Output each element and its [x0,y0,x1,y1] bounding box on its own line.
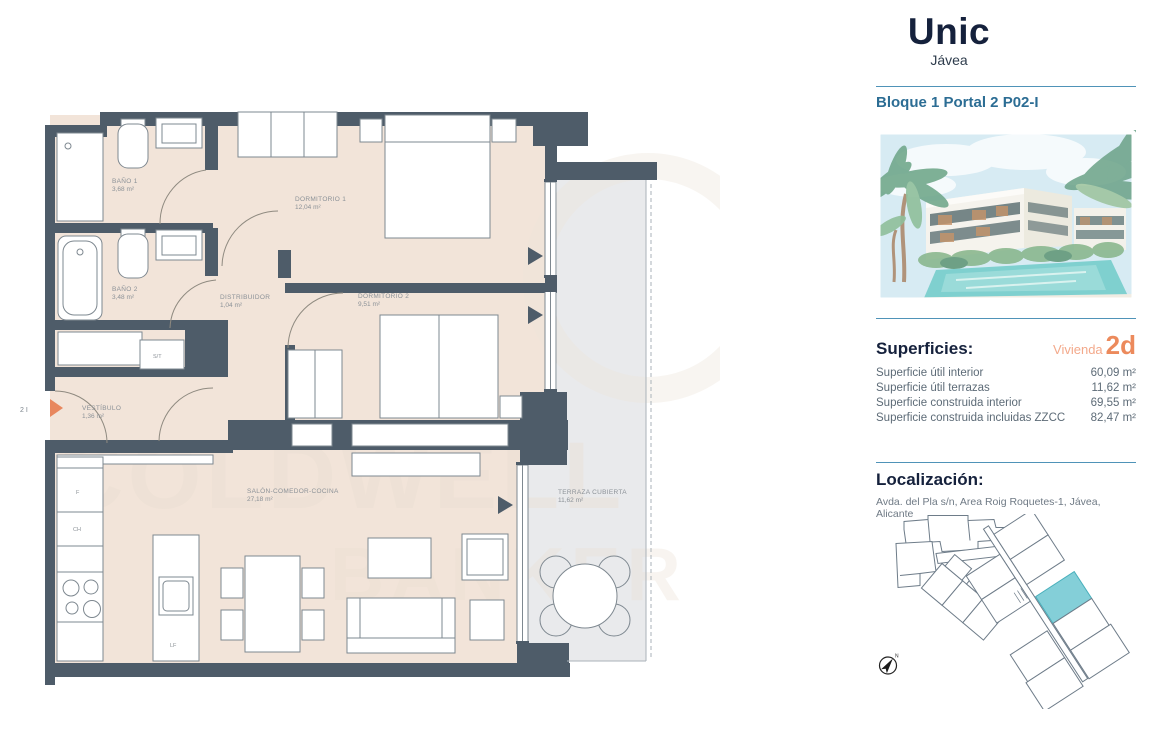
room-label: SALÓN-COMEDOR-COCINA [247,486,339,495]
room-area: 1,04 m² [220,302,243,309]
brand-subtitle: Jávea [876,52,1022,68]
floor-plan: COLDWELL BANKER [0,0,720,756]
table-row: Superficie útil terrazas 11,62 m² [876,381,1136,396]
unit-type: Vivienda2d [1053,330,1136,361]
row-value: 69,55 m² [1091,396,1136,411]
room-area: 9,51 m² [358,301,381,308]
laundry-label: S/T [153,354,162,360]
room-area: 3,48 m² [112,294,135,301]
room-area: 11,62 m² [558,497,584,504]
superficies-table: Superficie útil interior 60,09 m² Superf… [876,366,1136,426]
wall-closet [292,424,332,446]
room-label: DORMITORIO 1 [295,196,346,203]
room-label: DORMITORIO 2 [358,293,409,300]
room-label: BAÑO 1 [112,176,138,185]
room-label: TERRAZA CUBIERTA [558,489,627,496]
brand-name: Unic [876,12,1022,52]
row-label: Superficie útil terrazas [876,381,990,396]
table-row: Superficie construida incluidas ZZCC 82,… [876,411,1136,426]
separator [876,86,1136,87]
north-label: N [895,654,899,660]
row-label: Superficie construida incluidas ZZCC [876,411,1065,426]
entry-label: 2 I [20,407,28,414]
row-value: 60,09 m² [1091,366,1136,381]
room-label: VESTÍBULO [82,403,121,412]
brochure-page: COLDWELL BANKER [0,0,1156,756]
row-value: 82,47 m² [1091,411,1136,426]
terrace-furniture [540,556,630,636]
brand-block: Unic Jávea [876,12,1022,68]
separator [876,318,1136,319]
room-label: DISTRIBUIDOR [220,294,270,301]
table-row: Superficie útil interior 60,09 m² [876,366,1136,381]
room-area: 1,36 m² [82,413,105,420]
row-label: Superficie útil interior [876,366,983,381]
block-title: Bloque 1 Portal 2 P02-I [876,94,1039,111]
compass-icon: N [880,654,900,675]
room-area: 27,18 m² [247,496,273,503]
unit-type-value: 2d [1106,330,1136,360]
site-plan: N [876,514,1136,709]
ch-label: CH [73,527,81,533]
separator [876,462,1136,463]
info-panel: Unic Jávea Bloque 1 Portal 2 P02-I [876,0,1136,756]
row-value: 11,62 m² [1091,381,1136,396]
superficies-header: Superficies: Vivienda2d [876,330,1136,361]
wall-closet [352,424,508,446]
localizacion-heading: Localización: [876,470,984,490]
dishwasher-label: LF [170,643,177,649]
room-label: BAÑO 2 [112,284,138,293]
building-render-image [876,130,1136,304]
unit-type-label: Vivienda [1053,342,1103,357]
table-row: Superficie construida interior 69,55 m² [876,396,1136,411]
row-label: Superficie construida interior [876,396,1022,411]
room-area: 3,68 m² [112,186,135,193]
room-area: 12,04 m² [295,204,321,211]
superficies-heading: Superficies: [876,339,973,359]
